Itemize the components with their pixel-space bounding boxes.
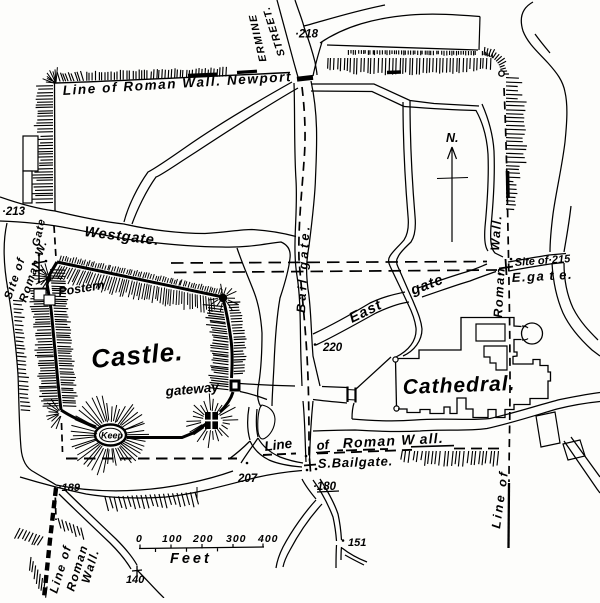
svg-text:Roman: Roman [491,266,508,318]
svg-text:Wall.: Wall. [488,214,505,251]
svg-text:·213: ·213 [2,206,26,218]
svg-text:400: 400 [257,533,279,545]
svg-text:Cathedral.: Cathedral. [402,372,515,399]
svg-text:207: 207 [237,473,258,485]
svg-text:·218: ·218 [295,29,319,41]
svg-text:N.: N. [446,131,459,145]
svg-text:200: 200 [192,533,214,545]
svg-text:151: 151 [348,537,366,549]
svg-text:S.Bailgate.: S.Bailgate. [318,453,394,471]
svg-text:Feet: Feet [170,551,212,567]
svg-text:Keep: Keep [101,431,124,441]
svg-text:0: 0 [136,533,142,545]
svg-text:100: 100 [162,533,183,545]
svg-text:220: 220 [322,342,343,354]
svg-text:300: 300 [226,533,247,545]
svg-text:·189: ·189 [58,482,81,494]
